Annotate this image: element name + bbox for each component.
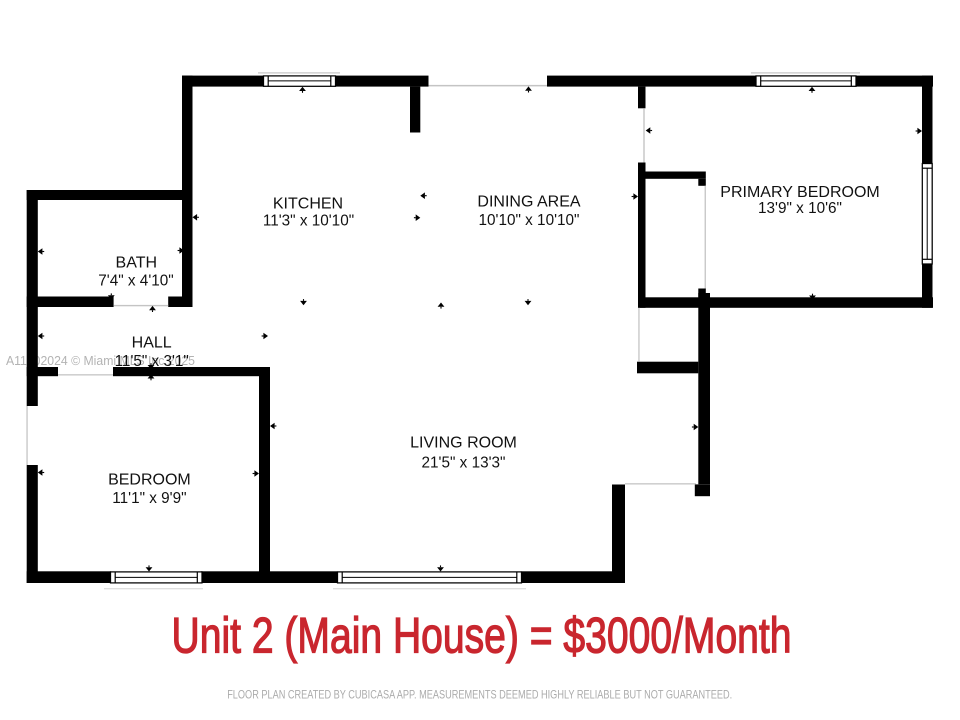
svg-text:BATH: BATH [116,254,157,271]
svg-text:Unit 2 (Main House) = $3000/Mo: Unit 2 (Main House) = $3000/Month [172,607,792,664]
svg-text:11'5" x 3'1": 11'5" x 3'1" [115,353,189,370]
svg-text:PRIMARY BEDROOM: PRIMARY BEDROOM [720,184,879,201]
svg-text:HALL: HALL [132,334,172,351]
svg-text:21'5" x 13'3": 21'5" x 13'3" [422,454,506,471]
svg-text:13'9" x 10'6": 13'9" x 10'6" [758,200,842,217]
svg-text:KITCHEN: KITCHEN [273,196,343,213]
svg-text:FLOOR PLAN CREATED BY CUBICASA: FLOOR PLAN CREATED BY CUBICASA APP. MEAS… [227,688,732,702]
svg-text:LIVING ROOM: LIVING ROOM [410,435,517,452]
svg-text:7'4" x 4'10": 7'4" x 4'10" [98,272,173,289]
svg-text:11'3" x 10'10": 11'3" x 10'10" [263,213,354,230]
svg-text:11'1" x 9'9": 11'1" x 9'9" [112,490,186,507]
svg-text:BEDROOM: BEDROOM [108,472,191,489]
svg-text:DINING AREA: DINING AREA [477,194,580,211]
svg-text:10'10" x 10'10": 10'10" x 10'10" [479,212,580,229]
